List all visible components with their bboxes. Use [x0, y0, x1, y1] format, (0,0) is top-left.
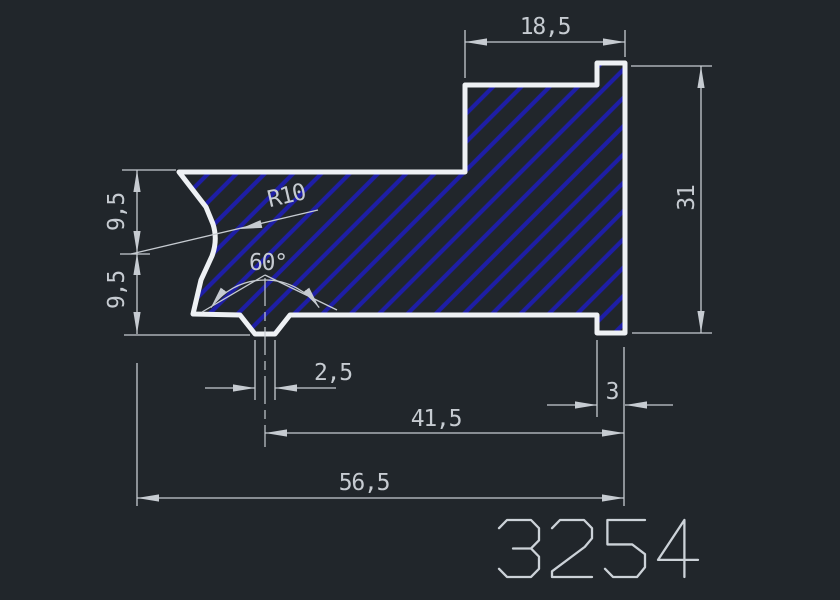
- dimension-label: 18,5: [520, 14, 571, 40]
- dimension-label: 9,5: [104, 271, 130, 309]
- dimension-label: 9,5: [104, 193, 130, 231]
- dimension-label: 56,5: [339, 470, 390, 496]
- cad-drawing-stage: 18,5 31 9,5 9,5 R10 60°: [0, 0, 840, 600]
- dimension-label: 60°: [249, 250, 287, 276]
- dimension-label: 2,5: [314, 360, 352, 386]
- dimension-label: 3: [606, 379, 619, 405]
- dimension-label: 31: [674, 185, 700, 211]
- profile-drawing-canvas: 18,5 31 9,5 9,5 R10 60°: [0, 0, 840, 600]
- dimension-label: 41,5: [411, 406, 462, 432]
